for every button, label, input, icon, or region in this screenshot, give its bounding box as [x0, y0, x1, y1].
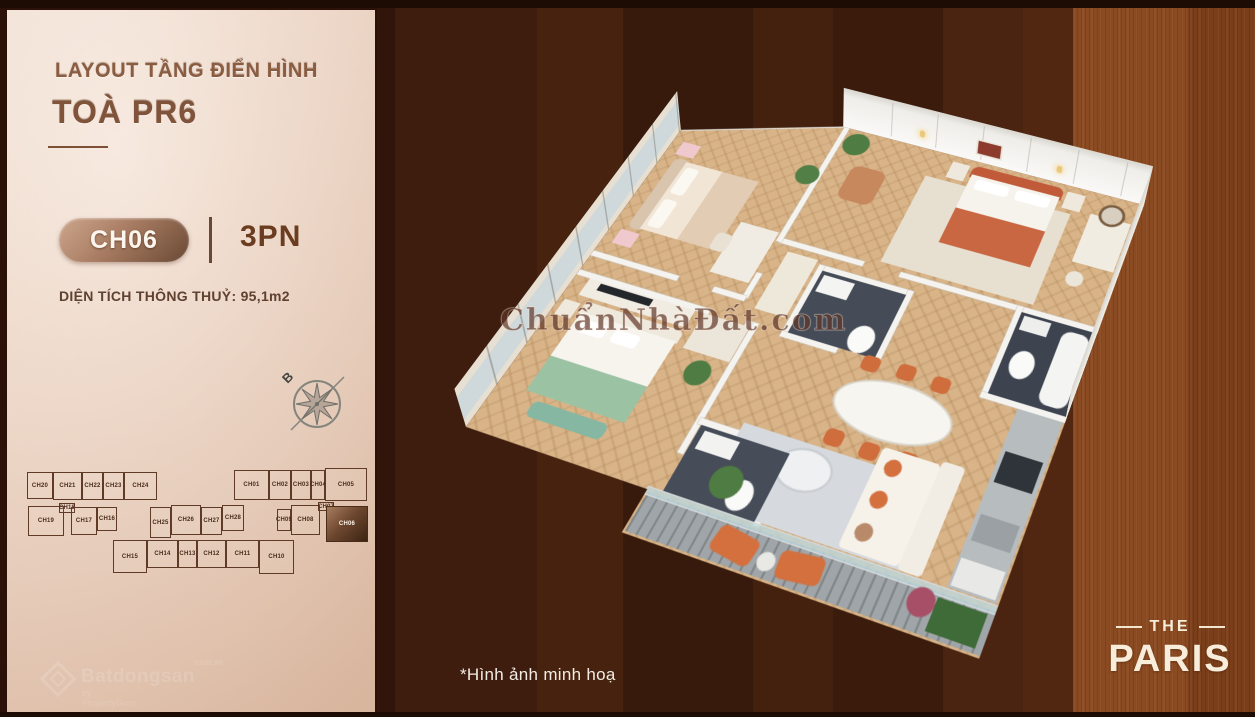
- logo-dash-left: [1116, 626, 1142, 628]
- bottom-edge-strip: [0, 712, 1255, 717]
- wall-bedroom2-south-b: [712, 287, 747, 302]
- bedrooms-label: 3PN: [240, 220, 301, 254]
- unit-ch26: CH26: [171, 505, 201, 535]
- unit-ch04: CH04: [311, 470, 325, 500]
- badge-divider: [209, 217, 212, 263]
- title-underline: [48, 146, 108, 148]
- layout-title: LAYOUT TẦNG ĐIỂN HÌNH: [55, 60, 318, 83]
- unit-ch15: CH15: [113, 540, 147, 573]
- unit-ch08: CH08: [291, 505, 320, 535]
- unit-ch17: CH17: [71, 507, 97, 535]
- unit-ch24: CH24: [124, 472, 157, 500]
- wood-grain-texture: [1073, 0, 1255, 717]
- dining-chair: [894, 363, 918, 383]
- batdongsan-logo-icon: [45, 666, 71, 692]
- disclaimer-text: *Hình ảnh minh hoạ: [460, 665, 616, 685]
- unit-ch01: CH01: [234, 470, 269, 500]
- watermark-chuannhadat: ChuẩnNhàĐất.com: [500, 303, 800, 338]
- dining-chair: [821, 427, 847, 449]
- logo-the-text: THE: [1150, 618, 1191, 636]
- top-edge-strip: [0, 0, 1255, 8]
- unit-ch28: CH28: [222, 505, 244, 531]
- nightstand: [1061, 192, 1086, 213]
- unit-ch16: CH16: [97, 507, 117, 531]
- unit-ch23: CH23: [103, 472, 124, 500]
- project-logo: THE PARIS: [1095, 618, 1245, 681]
- unit-ch09: CH09: [277, 509, 291, 531]
- pink-nightstand: [675, 142, 701, 159]
- unit-ch27: CH27: [201, 507, 222, 535]
- logo-dash-right: [1199, 626, 1225, 628]
- unit-ch22: CH22: [82, 472, 103, 500]
- logo-paris-text: PARIS: [1095, 638, 1245, 681]
- tower-title: TOÀ PR6: [52, 94, 197, 131]
- compass-icon: B: [285, 372, 349, 436]
- floor-plate-diagram: CH20CH21CH22CH23CH24CH01CH02CH03CH04CH05…: [19, 462, 371, 582]
- plant: [678, 357, 717, 388]
- unit-ch20: CH20: [27, 472, 53, 499]
- unit-ch10: CH10: [259, 540, 294, 574]
- batdongsan-brand-text: Batdongsan: [81, 666, 195, 688]
- unit-ch06: CH06: [326, 506, 368, 542]
- info-panel: LAYOUT TẦNG ĐIỂN HÌNH TOÀ PR6 CH06 3PN D…: [7, 10, 375, 712]
- stool: [1063, 269, 1086, 288]
- batdongsan-tld-text: com.vn: [195, 658, 223, 667]
- pink-nightstand: [612, 229, 640, 248]
- unit-ch03: CH03: [291, 470, 311, 500]
- plant: [791, 163, 824, 187]
- master-armchair: [835, 165, 888, 207]
- wall-sconce: [920, 130, 926, 138]
- unit-ch12: CH12: [197, 540, 226, 568]
- nightstand: [945, 162, 970, 182]
- unit-badge: CH06: [59, 218, 189, 262]
- unit-ch05: CH05: [325, 468, 367, 501]
- unit-ch02: CH02: [269, 470, 291, 500]
- area-label: DIỆN TÍCH THÔNG THUỶ: 95,1m2: [59, 288, 290, 304]
- wall-bedroom2-east: [776, 127, 850, 242]
- unit-ch21: CH21: [53, 472, 82, 500]
- wall-entry-diagonal: [681, 123, 845, 130]
- unit-ch14: CH14: [147, 540, 178, 568]
- unit-ch11: CH11: [226, 540, 259, 568]
- dining-chair: [929, 375, 953, 395]
- unit-ch13: CH13: [178, 540, 197, 568]
- batdongsan-sub-text: by PropertyGuru: [82, 688, 136, 708]
- unit-ch25: CH25: [150, 507, 171, 538]
